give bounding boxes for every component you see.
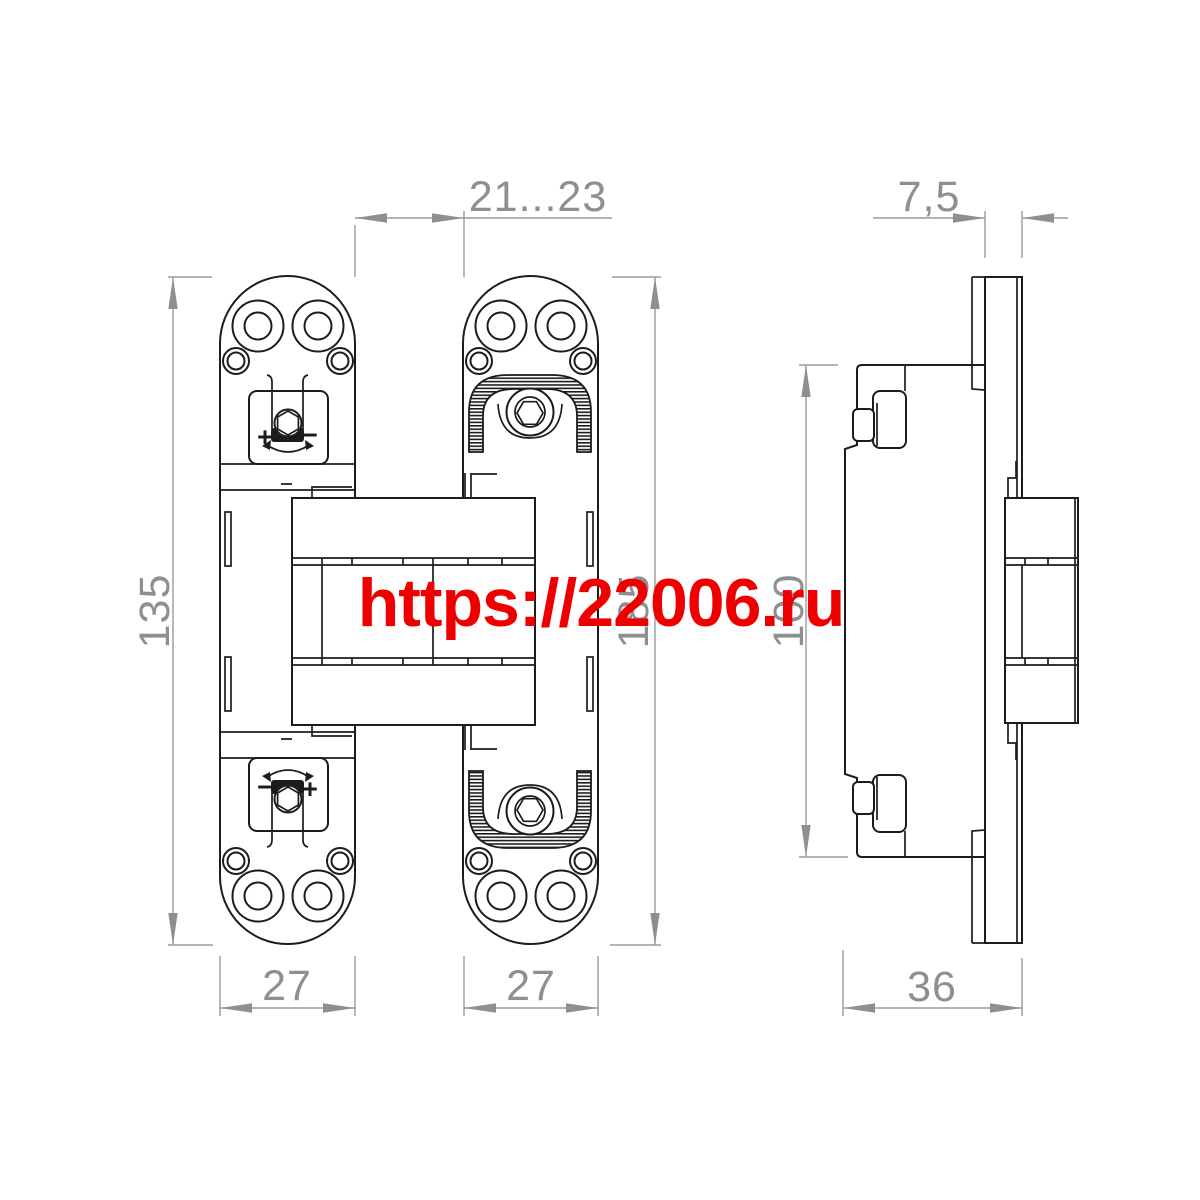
dim-label-left-height: 135 <box>131 574 179 649</box>
dim-label-top-gap: 21...23 <box>469 173 608 221</box>
plus-sign: + <box>302 774 318 804</box>
dim-label-plate-thickness: 7,5 <box>898 173 961 221</box>
side-pivot-block <box>1005 461 1078 760</box>
dim-label-depth: 36 <box>907 963 957 1011</box>
side-view <box>845 277 1078 943</box>
dim-label-right-width: 27 <box>506 962 556 1010</box>
watermark-url: https://22006.ru <box>358 564 845 642</box>
dim-label-left-width: 27 <box>262 962 312 1010</box>
adjustment-screw <box>275 786 302 813</box>
minus-sign: − <box>302 420 318 450</box>
hinge-technical-drawing: 21...23 7,5 135 185 100 27 27 36 + − − +… <box>0 0 1200 1200</box>
minus-sign: − <box>257 772 273 802</box>
plus-sign: + <box>257 422 273 452</box>
adjustment-screw <box>275 410 302 437</box>
